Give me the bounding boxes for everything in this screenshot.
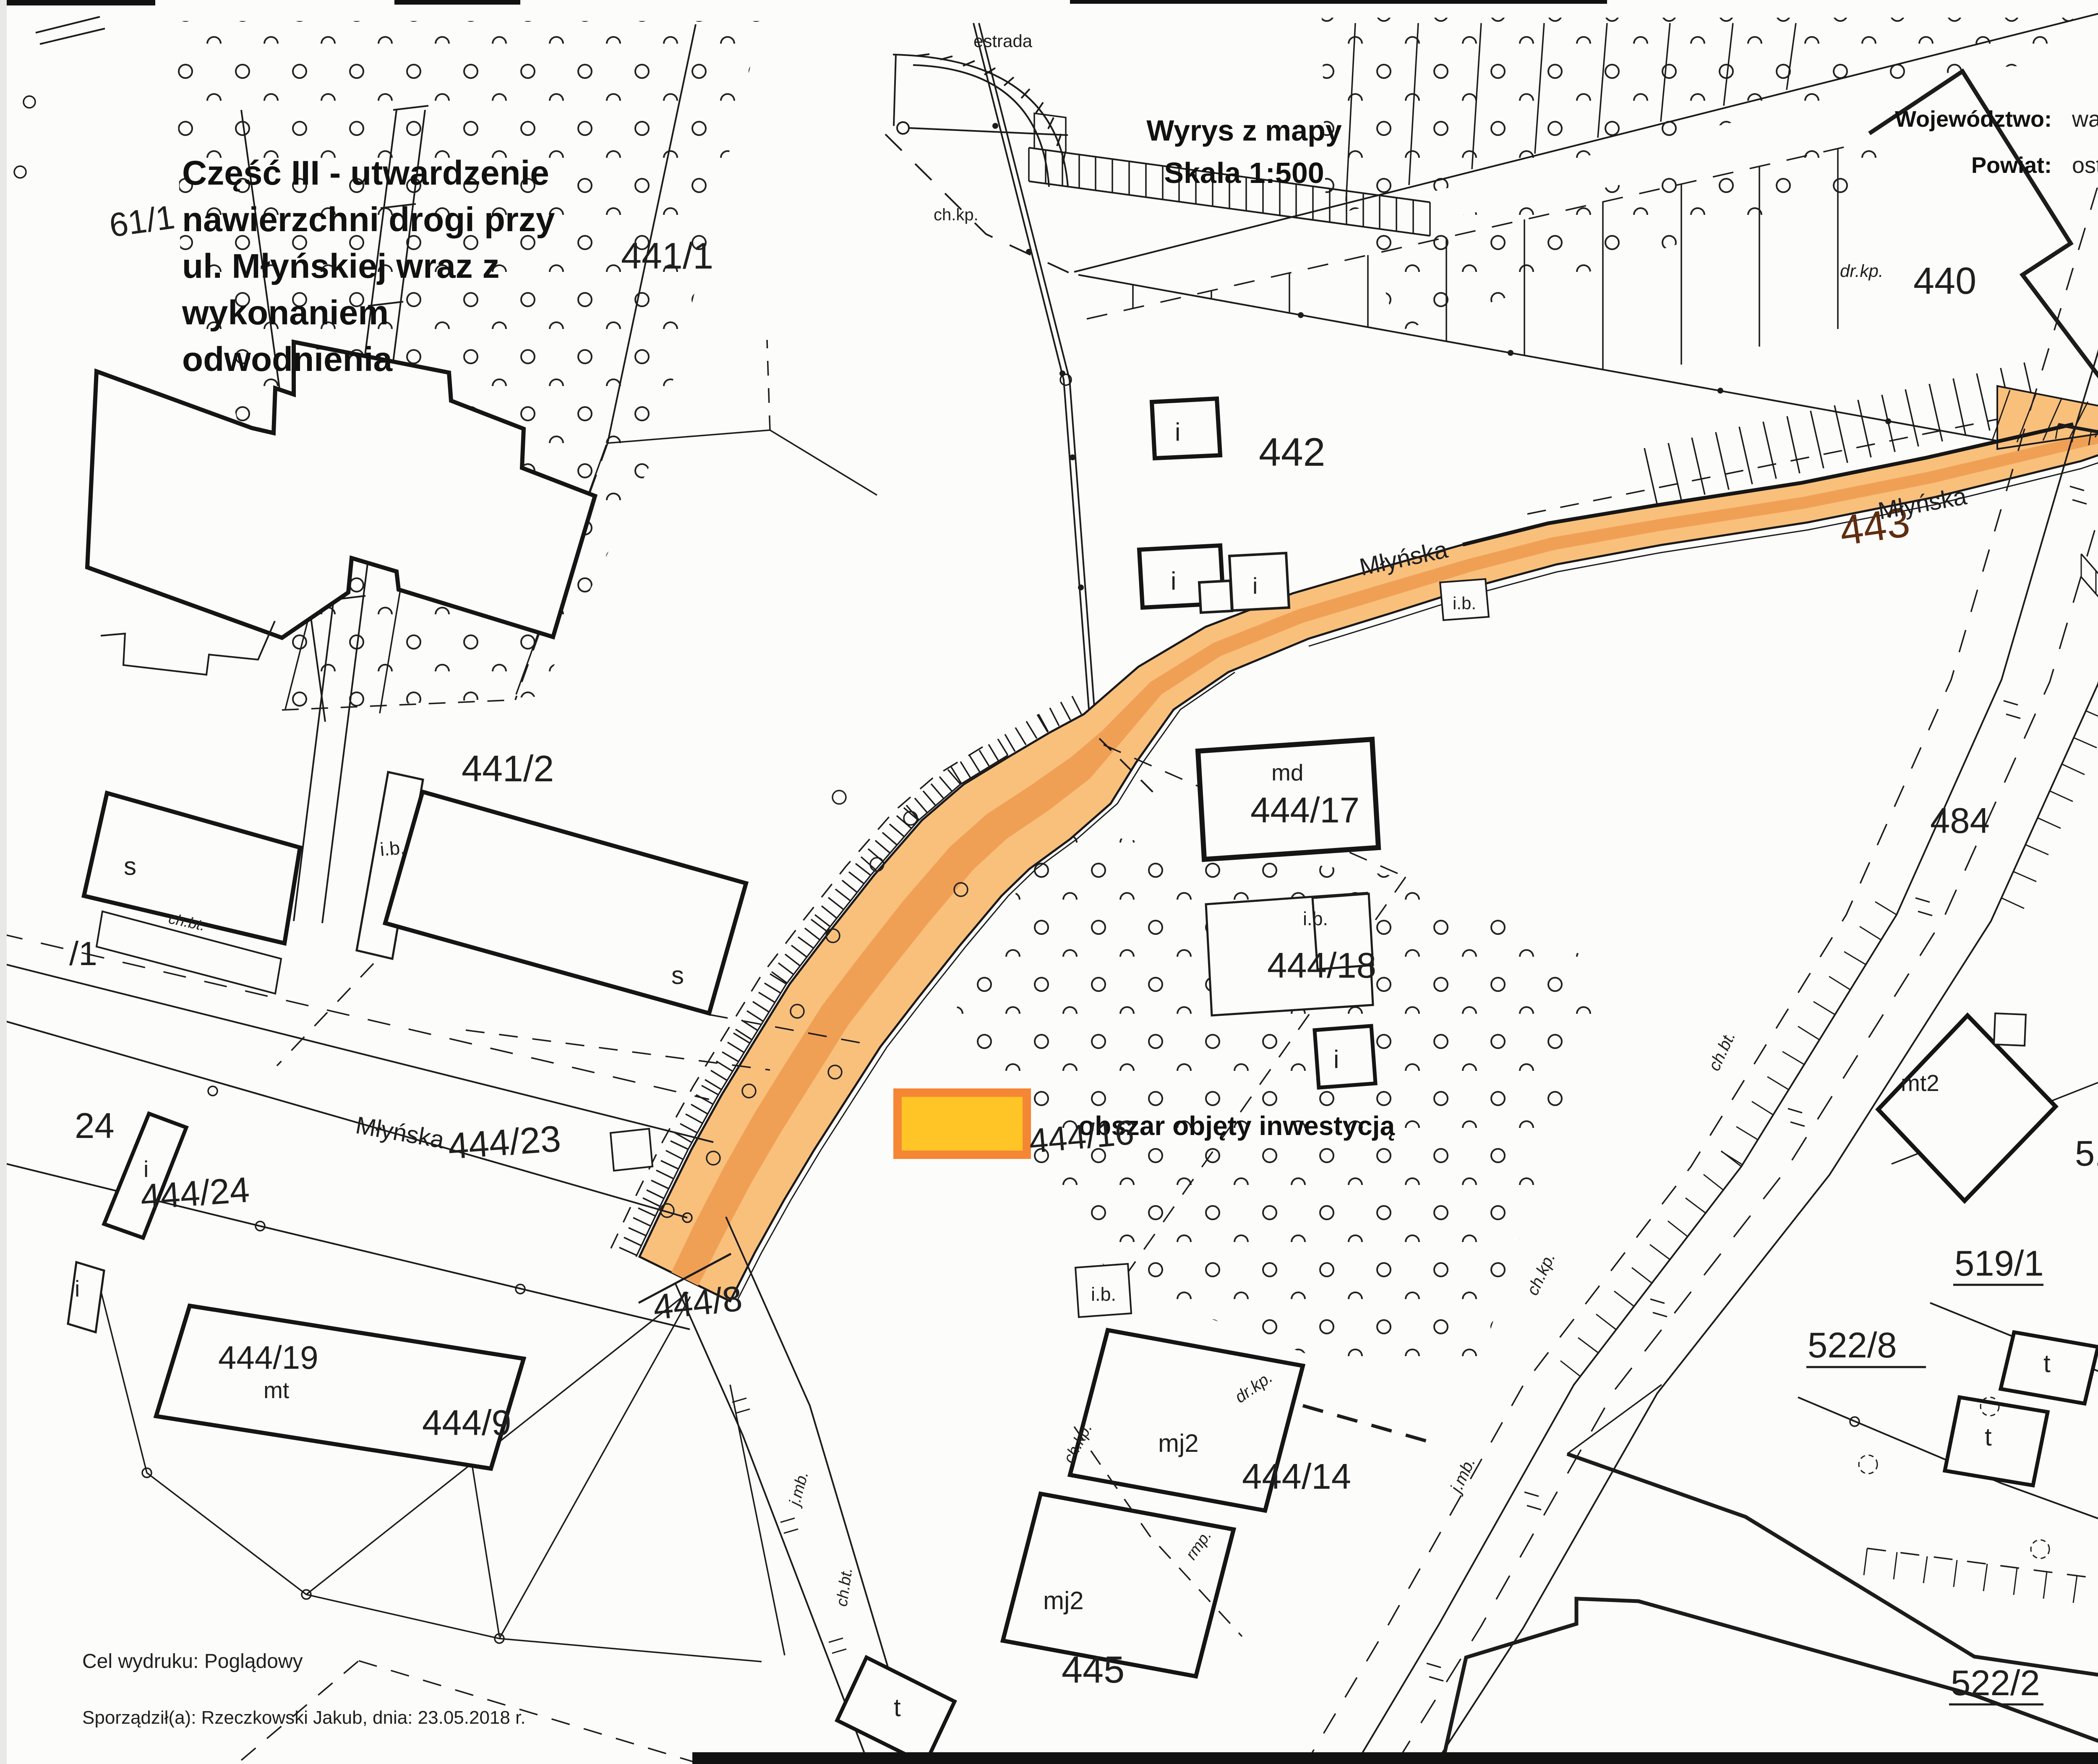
svg-text:441/2: 441/2 — [462, 748, 554, 789]
svg-text:i.b.: i.b. — [1091, 1284, 1116, 1305]
svg-text:440: 440 — [1913, 260, 1976, 302]
svg-text:i: i — [1333, 1045, 1339, 1073]
svg-text:445: 445 — [1062, 1649, 1125, 1691]
svg-text:wykonaniem: wykonaniem — [182, 294, 389, 332]
svg-text:444/24: 444/24 — [139, 1170, 251, 1217]
svg-text:estrada: estrada — [973, 31, 1033, 51]
svg-text:442: 442 — [1259, 430, 1326, 475]
svg-text:522/8: 522/8 — [1808, 1326, 1897, 1365]
svg-text:484: 484 — [1930, 801, 1990, 841]
svg-text:t: t — [894, 1694, 901, 1722]
svg-text:Część III - utwardzenie: Część III - utwardzenie — [182, 154, 549, 192]
svg-text:522/2: 522/2 — [1951, 1663, 2040, 1703]
svg-text:dr.kp.: dr.kp. — [1840, 261, 1883, 281]
svg-text:/1: /1 — [69, 935, 97, 972]
svg-text:i.b.: i.b. — [379, 837, 406, 860]
svg-text:i.b.: i.b. — [1453, 593, 1476, 613]
svg-text:mt: mt — [264, 1377, 289, 1403]
svg-text:ul. Młyńskiej wraz z: ul. Młyńskiej wraz z — [182, 247, 499, 285]
svg-text:441/1: 441/1 — [621, 235, 713, 277]
svg-text:444/18: 444/18 — [1267, 946, 1376, 986]
svg-text:i.b.: i.b. — [1303, 908, 1328, 929]
svg-text:518/1: 518/1 — [2075, 1134, 2098, 1174]
svg-text:Województwo:: Województwo: — [1895, 107, 2052, 132]
svg-text:t: t — [1985, 1423, 1992, 1451]
svg-text:i: i — [1175, 418, 1180, 446]
svg-text:444/19: 444/19 — [218, 1339, 318, 1376]
svg-text:s: s — [671, 961, 684, 989]
svg-text:mt2: mt2 — [1901, 1070, 1939, 1096]
svg-text:Skala 1:500: Skala 1:500 — [1164, 157, 1324, 189]
svg-text:md: md — [1271, 759, 1303, 785]
svg-text:444/23: 444/23 — [446, 1117, 562, 1167]
svg-text:t: t — [2043, 1349, 2051, 1378]
svg-text:Powiat:: Powiat: — [1971, 153, 2052, 178]
svg-text:444/17: 444/17 — [1250, 791, 1360, 830]
svg-text:Cel wydruku: Poglądowy: Cel wydruku: Poglądowy — [82, 1650, 303, 1673]
svg-text:i: i — [75, 1276, 80, 1302]
svg-text:i: i — [1253, 573, 1258, 599]
svg-text:Sporządził(a): Rzeczkowski Jak: Sporządził(a): Rzeczkowski Jakub, dnia: … — [82, 1707, 526, 1728]
svg-text:mj2: mj2 — [1043, 1587, 1084, 1615]
svg-text:519/1: 519/1 — [1954, 1244, 2044, 1284]
svg-text:nawierzchni drogi przy: nawierzchni drogi przy — [182, 201, 555, 239]
svg-text:444/9: 444/9 — [422, 1403, 511, 1443]
svg-text:i: i — [1171, 567, 1176, 595]
svg-text:ch.kp.: ch.kp. — [934, 206, 979, 224]
svg-text:i: i — [144, 1156, 149, 1182]
svg-text:Wyrys z mapy: Wyrys z mapy — [1146, 114, 1342, 147]
svg-text:ostródzki: ostródzki — [2072, 153, 2098, 178]
svg-text:warmińsko-mazurskie: warmińsko-mazurskie — [2072, 107, 2098, 132]
svg-text:444/14: 444/14 — [1242, 1457, 1351, 1497]
svg-text:24: 24 — [75, 1106, 115, 1146]
svg-text:odwodnienia: odwodnienia — [182, 340, 393, 378]
svg-text:mj2: mj2 — [1158, 1429, 1199, 1457]
svg-text:s: s — [124, 852, 136, 880]
